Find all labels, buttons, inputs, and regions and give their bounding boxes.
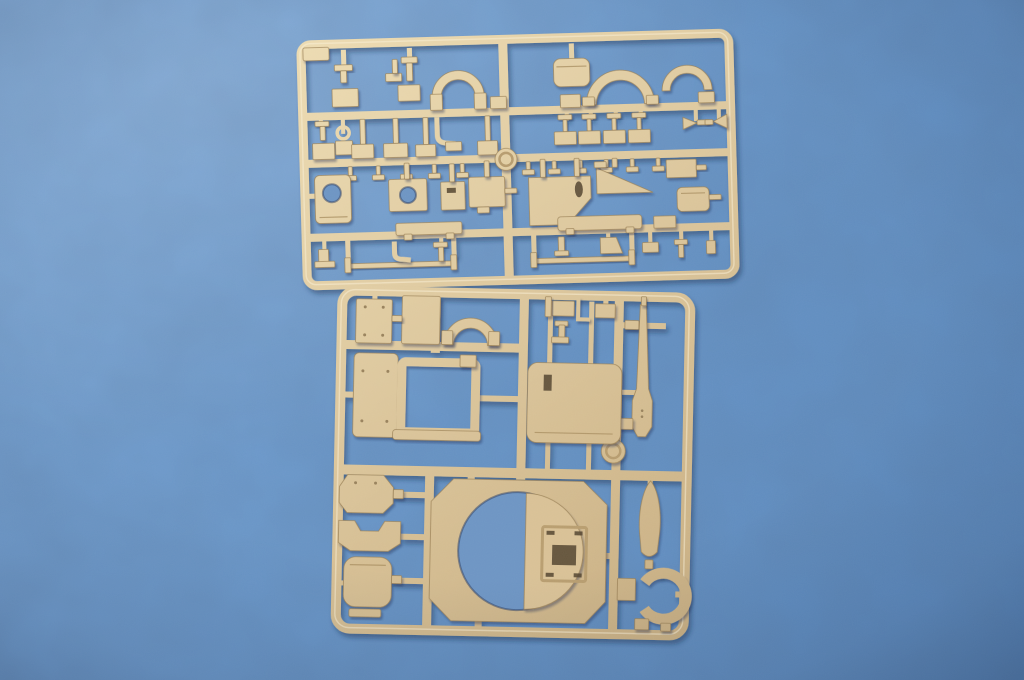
photo-vignette <box>0 0 1024 680</box>
photo-canvas <box>0 0 1024 680</box>
model-kit-sprues-photo <box>0 0 1024 680</box>
